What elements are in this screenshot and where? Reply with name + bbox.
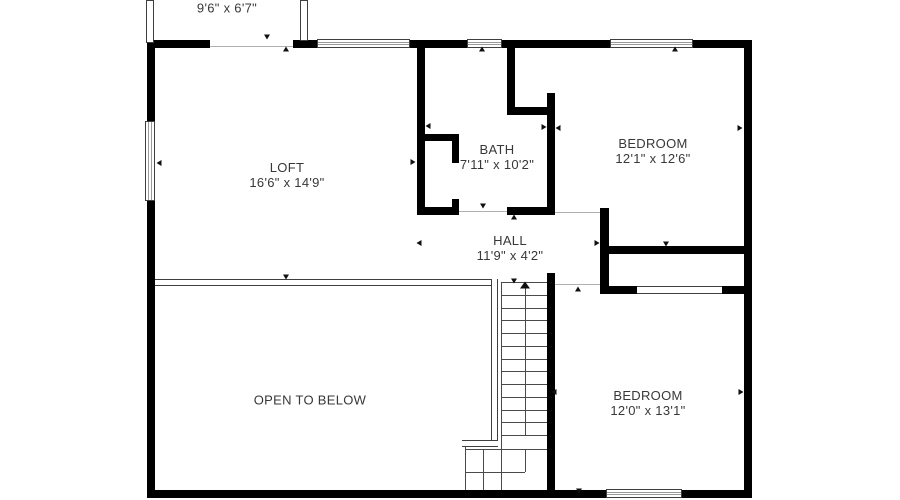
railing bbox=[491, 279, 498, 447]
stair-line bbox=[501, 410, 547, 411]
stair-line bbox=[501, 422, 547, 423]
bedroom-bottom-dimensions: 12'0" x 13'1" bbox=[610, 403, 685, 418]
stair-line bbox=[525, 449, 526, 472]
opening-marker-icon bbox=[264, 35, 270, 40]
stair-line bbox=[501, 282, 502, 490]
wall bbox=[147, 40, 155, 121]
railing bbox=[155, 279, 498, 286]
wall bbox=[147, 490, 606, 498]
hall-dimensions: 11'9" x 4'2" bbox=[477, 248, 544, 263]
opening-marker-icon bbox=[283, 47, 289, 52]
opening-marker-icon bbox=[426, 123, 431, 129]
wall bbox=[507, 48, 515, 115]
room-label-hall: HALL 11'9" x 4'2" bbox=[477, 233, 544, 263]
opening-marker-icon bbox=[738, 125, 743, 131]
stair-line bbox=[466, 472, 525, 473]
stair-line bbox=[501, 384, 547, 385]
stair-line bbox=[501, 308, 547, 309]
stair-line bbox=[501, 371, 547, 372]
stair-line bbox=[501, 397, 547, 398]
opening-marker-icon bbox=[556, 125, 561, 131]
loft-dimensions: 16'6" x 14'9" bbox=[249, 175, 324, 190]
stair-line bbox=[501, 333, 547, 334]
opening-marker-icon bbox=[672, 47, 678, 52]
room-label-bedroom-top: BEDROOM 12'1" x 12'6" bbox=[615, 136, 690, 166]
door-threshold bbox=[459, 211, 507, 212]
stair-line bbox=[501, 346, 547, 347]
loft-name: LOFT bbox=[249, 160, 324, 175]
wall bbox=[547, 273, 555, 498]
wall bbox=[417, 48, 425, 215]
opening-marker-icon bbox=[511, 215, 517, 220]
bath-dimensions: 7'11" x 10'2" bbox=[460, 157, 534, 172]
stair-line bbox=[501, 320, 547, 321]
window bbox=[145, 121, 155, 201]
bedroom-top-name: BEDROOM bbox=[615, 136, 690, 151]
opening-marker-icon bbox=[479, 47, 485, 52]
open-to-below-label: OPEN TO BELOW bbox=[254, 393, 367, 408]
stair-line bbox=[501, 295, 547, 296]
wall bbox=[600, 286, 637, 294]
window bbox=[606, 489, 682, 498]
opening-marker-icon bbox=[575, 287, 581, 292]
opening-marker-icon bbox=[157, 160, 162, 166]
stair-line bbox=[501, 359, 547, 360]
railing bbox=[462, 440, 498, 447]
door-threshold bbox=[555, 212, 600, 213]
opening-marker-icon bbox=[663, 242, 669, 247]
stair-line bbox=[483, 449, 484, 490]
opening-marker-icon bbox=[542, 124, 547, 130]
wall bbox=[293, 40, 317, 48]
railing bbox=[637, 286, 722, 294]
room-label-loft: LOFT 16'6" x 14'9" bbox=[249, 160, 324, 190]
opening-marker-icon bbox=[576, 489, 582, 494]
stair-line bbox=[466, 449, 547, 450]
stair-line bbox=[525, 288, 526, 435]
balcony-wall bbox=[146, 0, 154, 43]
hall-name: HALL bbox=[477, 233, 544, 248]
stair-line bbox=[465, 447, 466, 490]
wall bbox=[147, 201, 155, 498]
room-label-bath: BATH 7'11" x 10'2" bbox=[460, 142, 534, 172]
bath-name: BATH bbox=[460, 142, 534, 157]
door-threshold bbox=[210, 46, 293, 47]
wall bbox=[607, 246, 744, 254]
wall bbox=[744, 40, 752, 498]
wall bbox=[452, 134, 459, 163]
room-label-bedroom-bottom: BEDROOM 12'0" x 13'1" bbox=[610, 388, 685, 418]
opening-marker-icon bbox=[595, 240, 600, 246]
wall bbox=[547, 93, 555, 215]
window bbox=[317, 39, 410, 48]
wall bbox=[452, 199, 459, 215]
opening-marker-icon bbox=[417, 240, 422, 246]
wall bbox=[410, 40, 467, 48]
opening-marker-icon bbox=[511, 279, 517, 284]
stair-line bbox=[501, 435, 547, 436]
wall bbox=[722, 286, 744, 294]
bedroom-top-dimensions: 12'1" x 12'6" bbox=[615, 151, 690, 166]
opening-marker-icon bbox=[283, 275, 289, 280]
wall bbox=[502, 40, 610, 48]
wall bbox=[682, 490, 752, 498]
wall bbox=[147, 40, 210, 48]
balcony-dimensions-label: 9'6" x 6'7" bbox=[197, 1, 257, 16]
opening-marker-icon bbox=[552, 389, 557, 395]
stairs-up-arrow-icon bbox=[520, 282, 530, 289]
opening-marker-icon bbox=[739, 389, 744, 395]
floor-plan: 9'6" x 6'7" LOFT 16'6" x 14'9" BATH 7'11… bbox=[0, 0, 900, 500]
door-threshold bbox=[555, 284, 600, 285]
bedroom-bottom-name: BEDROOM bbox=[610, 388, 685, 403]
window bbox=[610, 39, 693, 48]
opening-marker-icon bbox=[411, 159, 416, 165]
balcony-wall bbox=[300, 0, 308, 41]
opening-marker-icon bbox=[480, 204, 486, 209]
